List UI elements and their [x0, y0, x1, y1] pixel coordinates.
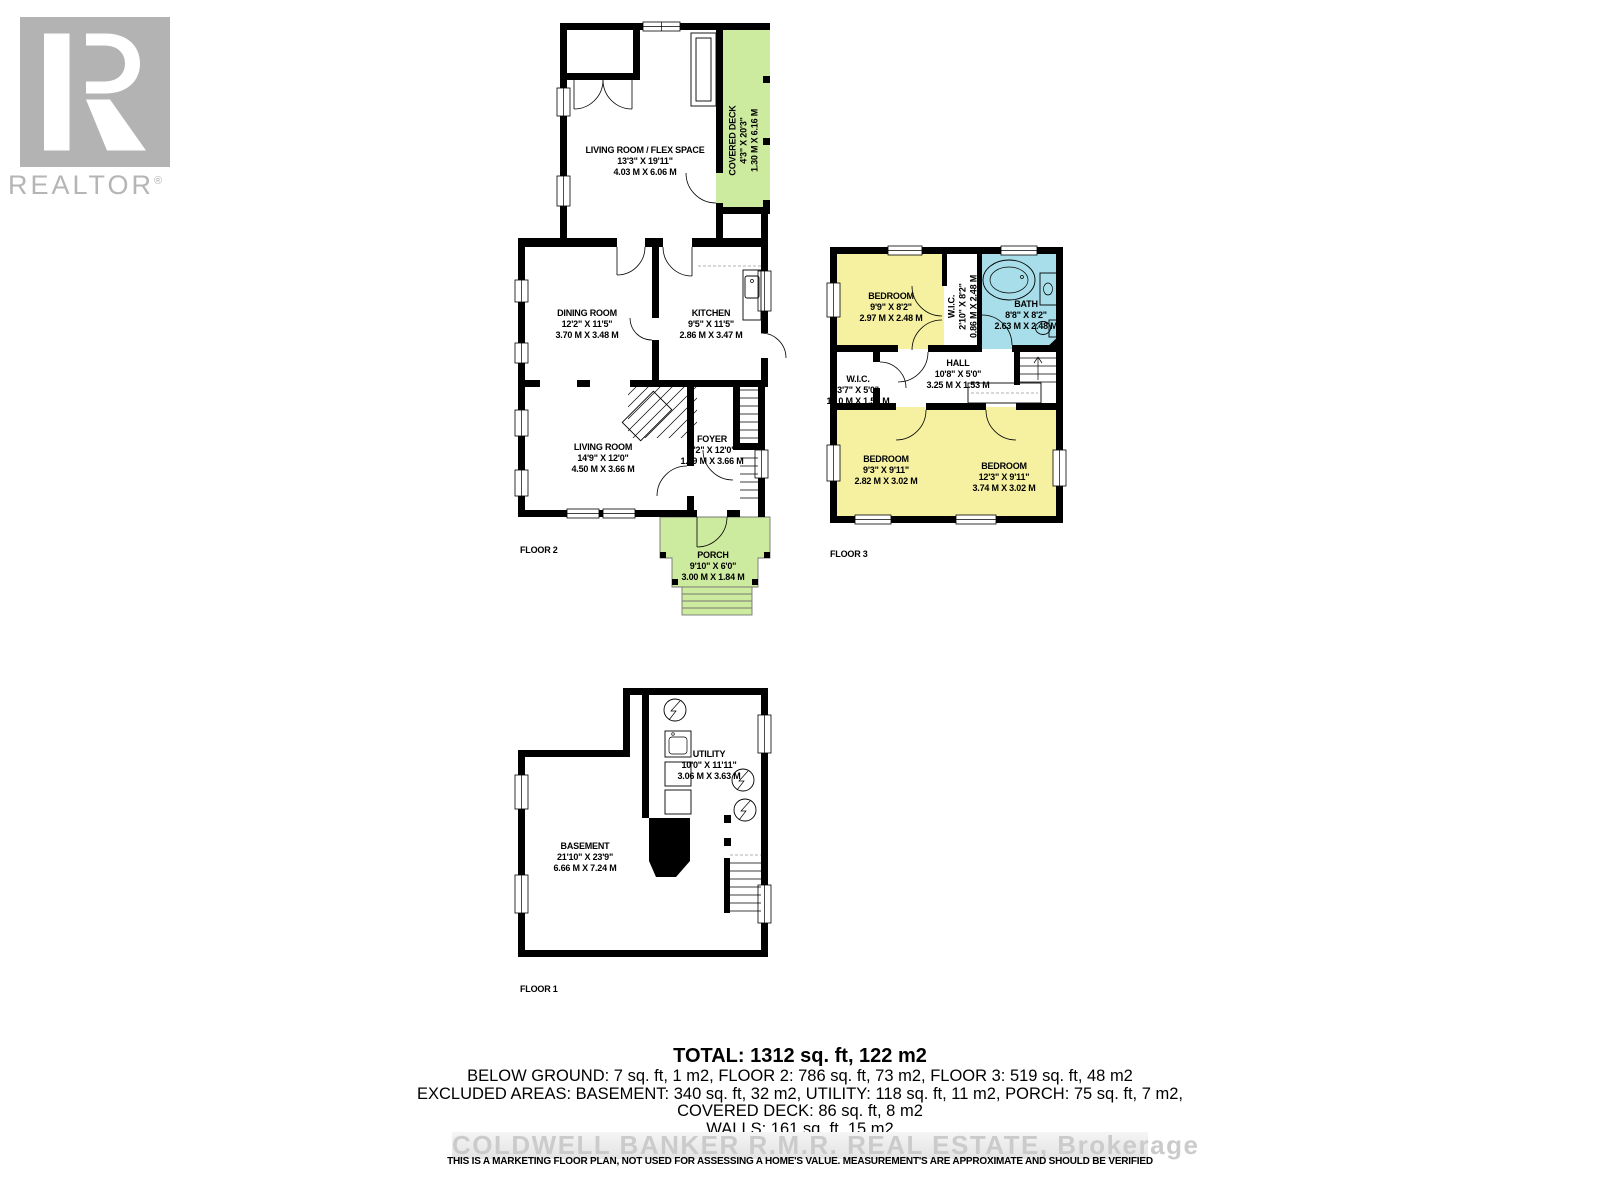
- realtor-wordmark: REALTOR®: [8, 170, 183, 201]
- room-label-utility: UTILITY 10'0" X 11'11" 3.06 M X 3.63 M: [639, 749, 779, 782]
- room-dim-imperial: 9'9" X 8'2": [821, 302, 961, 313]
- room-label-foyer: FOYER 4'2" X 12'0" 1.29 M X 3.66 M: [657, 434, 767, 467]
- room-label-bedroom-1: BEDROOM 9'9" X 8'2" 2.97 M X 2.48 M: [821, 291, 961, 324]
- room-name: BASEMENT: [515, 841, 655, 852]
- stairs: [730, 855, 761, 911]
- room-name: LIVING ROOM: [533, 442, 673, 453]
- room-name: COVERED DECK: [728, 66, 739, 216]
- room-dim-metric: 2.86 M X 3.47 M: [641, 330, 781, 341]
- room-dim-metric: 3.25 M X 1.53 M: [888, 380, 1028, 391]
- room-name: BATH: [956, 299, 1096, 310]
- room-dim-metric: 4.50 M X 3.66 M: [533, 464, 673, 475]
- room-dim-metric: 3.74 M X 3.02 M: [934, 483, 1074, 494]
- room-dim-metric: 2.97 M X 2.48 M: [821, 313, 961, 324]
- floor-1-walls: [518, 688, 768, 957]
- room-label-living-room: LIVING ROOM 14'9" X 12'0" 4.50 M X 3.66 …: [533, 442, 673, 475]
- room-dim-metric: 1.30 M X 6.16 M: [750, 66, 761, 216]
- room-dim-imperial: 4'3" X 20'3": [739, 66, 750, 216]
- brokerage-watermark: COLDWELL BANKER R.M.R. REAL ESTATE, Brok…: [452, 1132, 1148, 1159]
- room-label-basement: BASEMENT 21'10" X 23'9" 6.66 M X 7.24 M: [515, 841, 655, 874]
- room-name: FOYER: [657, 434, 767, 445]
- stairs-up: [740, 390, 758, 438]
- room-dim-imperial: 21'10" X 23'9": [515, 852, 655, 863]
- floor-3-tag: FLOOR 3: [830, 549, 868, 559]
- room-name: PORCH: [648, 550, 778, 561]
- room-dim-imperial: 13'3" X 19'11": [565, 156, 725, 167]
- room-dim-imperial: 9'5" X 11'5": [641, 319, 781, 330]
- room-name: UTILITY: [639, 749, 779, 760]
- room-label-covered-deck: COVERED DECK 4'3" X 20'3" 1.30 M X 6.16 …: [728, 66, 761, 216]
- room-name: KITCHEN: [641, 308, 781, 319]
- room-name: BEDROOM: [821, 291, 961, 302]
- realtor-r-icon: [20, 17, 170, 167]
- floor-plan-page: REALTOR®: [0, 0, 1600, 1200]
- summary-line-floors: BELOW GROUND: 7 sq. ft, 1 m2, FLOOR 2: 7…: [0, 1068, 1600, 1086]
- room-label-kitchen: KITCHEN 9'5" X 11'5" 2.86 M X 3.47 M: [641, 308, 781, 341]
- room-label-bedroom-3: BEDROOM 12'3" X 9'11" 3.74 M X 3.02 M: [934, 461, 1074, 494]
- room-label-porch: PORCH 9'10" X 6'0" 3.00 M X 1.84 M: [648, 550, 778, 583]
- room-label-dining-room: DINING ROOM 12'2" X 11'5" 3.70 M X 3.48 …: [517, 308, 657, 341]
- floor-1-plan: [503, 663, 778, 998]
- room-name: HALL: [888, 358, 1028, 369]
- area-summary: TOTAL: 1312 sq. ft, 122 m2 BELOW GROUND:…: [0, 1044, 1600, 1138]
- room-label-bath: BATH 8'8" X 8'2" 2.63 M X 2.48 M: [956, 299, 1096, 332]
- room-dim-metric: 1.10 M X 1.53 M: [808, 396, 908, 407]
- summary-total: TOTAL: 1312 sq. ft, 122 m2: [0, 1044, 1600, 1068]
- kitchen-sink: [745, 276, 759, 298]
- porch-steps: [682, 587, 752, 615]
- room-name: LIVING ROOM / FLEX SPACE: [565, 145, 725, 156]
- floor-1-tag: FLOOR 1: [520, 984, 558, 994]
- room-dim-metric: 6.66 M X 7.24 M: [515, 863, 655, 874]
- room-dim-imperial: 10'8" X 5'0": [888, 369, 1028, 380]
- room-label-living-room-flex-space: LIVING ROOM / FLEX SPACE 13'3" X 19'11" …: [565, 145, 725, 178]
- realtor-logo-icon: [20, 17, 170, 167]
- room-dim-imperial: 12'2" X 11'5": [517, 319, 657, 330]
- disclaimer-text: THIS IS A MARKETING FLOOR PLAN, NOT USED…: [0, 1156, 1600, 1167]
- summary-line-excluded: EXCLUDED AREAS: BASEMENT: 340 sq. ft, 32…: [0, 1086, 1600, 1104]
- room-dim-metric: 1.29 M X 3.66 M: [657, 456, 767, 467]
- room-dim-metric: 3.06 M X 3.63 M: [639, 771, 779, 782]
- summary-line-covered-deck: COVERED DECK: 86 sq. ft, 8 m2: [0, 1103, 1600, 1121]
- furnace: [649, 818, 690, 877]
- room-dim-metric: 3.70 M X 3.48 M: [517, 330, 657, 341]
- room-name: DINING ROOM: [517, 308, 657, 319]
- room-label-hall: HALL 10'8" X 5'0" 3.25 M X 1.53 M: [888, 358, 1028, 391]
- room-dim-metric: 2.63 M X 2.48 M: [956, 321, 1096, 332]
- room-dim-imperial: 10'0" X 11'11": [639, 760, 779, 771]
- room-dim-metric: 4.03 M X 6.06 M: [565, 167, 725, 178]
- room-dim-imperial: 12'3" X 9'11": [934, 472, 1074, 483]
- room-dim-imperial: 8'8" X 8'2": [956, 310, 1096, 321]
- room-dim-imperial: 4'2" X 12'0": [657, 445, 767, 456]
- wardrobe: [691, 33, 716, 106]
- floor-2-tag: FLOOR 2: [520, 545, 558, 555]
- room-dim-imperial: 9'10" X 6'0": [648, 561, 778, 572]
- room-dim-metric: 3.00 M X 1.84 M: [648, 572, 778, 583]
- room-dim-imperial: 14'9" X 12'0": [533, 453, 673, 464]
- room-name: BEDROOM: [934, 461, 1074, 472]
